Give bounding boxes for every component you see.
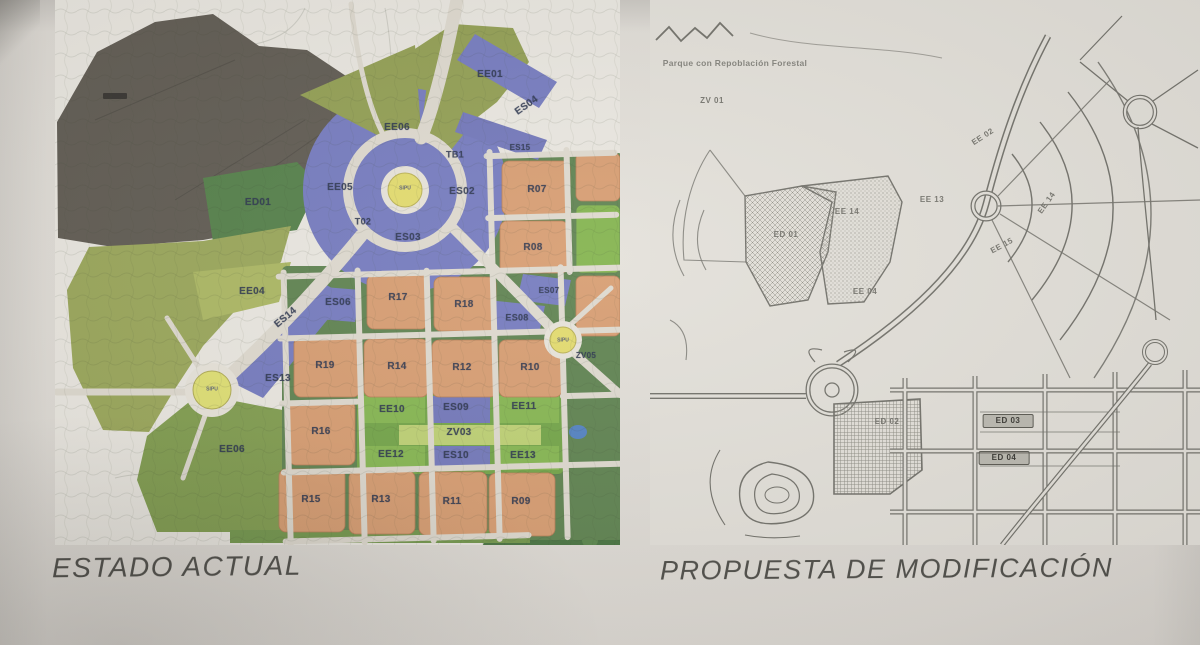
zone-label: R10 [520, 363, 539, 373]
zone-label: EE 14 [1037, 191, 1057, 215]
zone-label: EE 04 [853, 288, 877, 296]
zone-label: TB1 [446, 151, 464, 160]
zone-label: ZV 01 [700, 97, 724, 105]
roundabout-label: SIPU [557, 339, 569, 344]
zone-label: EE13 [510, 451, 536, 461]
zone-label: R12 [452, 363, 471, 373]
zone-label: R09 [511, 497, 530, 507]
zone-label: R18 [454, 300, 473, 310]
zone-label: EE 15 [989, 237, 1014, 255]
zone-label: ES14 [273, 306, 299, 330]
right-map-caption: PROPUESTA DE MODIFICACIÓN [660, 552, 1113, 586]
zone-label: ES07 [539, 287, 560, 295]
zone-label: ES06 [325, 298, 351, 308]
zone-label: ES10 [443, 451, 469, 461]
zone-label: ES04 [514, 95, 541, 118]
zone-label: EE01 [477, 70, 503, 80]
left-map-caption: ESTADO ACTUAL [52, 550, 302, 585]
zone-label: R16 [311, 427, 330, 437]
highlighted-zone-label: ED 03 [983, 414, 1034, 428]
zone-label: EE10 [379, 405, 405, 415]
zone-label: ES15 [510, 144, 531, 152]
zone-label: ES09 [443, 403, 469, 413]
zone-label: ED 01 [774, 231, 799, 239]
zone-label: EE05 [327, 183, 353, 193]
zone-label: ED01 [245, 198, 271, 208]
zone-label: R15 [301, 495, 320, 505]
zone-label: EE 02 [971, 127, 996, 147]
zone-label: ES02 [449, 187, 475, 197]
zone-label: EE06 [219, 445, 245, 455]
zone-label: EE06 [384, 123, 410, 133]
zone-label: EE11 [511, 402, 536, 412]
zone-label: R17 [388, 293, 407, 303]
zone-label: ES08 [505, 314, 528, 323]
zone-label: ZV03 [446, 428, 471, 438]
zone-label: ES13 [265, 374, 291, 384]
zone-label: ZV05 [576, 352, 596, 360]
roundabout-label: SIPU [399, 187, 411, 192]
right-map-labels: Parque con Repoblación ForestalZV 01EE 0… [650, 0, 1200, 545]
highlighted-zone-label: ED 04 [979, 451, 1030, 465]
zone-label: EE04 [239, 287, 265, 297]
zone-label: ED 02 [875, 418, 900, 426]
zone-label: EE12 [378, 450, 404, 460]
zone-label: R11 [443, 497, 462, 507]
zone-label: EE 14 [835, 208, 859, 216]
zone-label: ES03 [395, 233, 421, 243]
zone-label: R13 [371, 495, 390, 505]
left-map-labels: EE01ES04EE06ES15TB1EE05ED01ES02R07T02ES0… [55, 0, 620, 545]
zone-label: T02 [355, 218, 371, 227]
roundabout-label: SIPU [206, 388, 218, 393]
zone-label: R14 [387, 362, 406, 372]
zone-label: EE 13 [920, 196, 944, 204]
park-annotation: Parque con Repoblación Forestal [663, 59, 807, 68]
zone-label: R08 [523, 243, 542, 253]
zone-label: R19 [315, 361, 334, 371]
propuesta-modificacion-map: Parque con Repoblación ForestalZV 01EE 0… [650, 0, 1200, 545]
zone-label: R07 [527, 185, 546, 195]
estado-actual-map: EE01ES04EE06ES15TB1EE05ED01ES02R07T02ES0… [55, 0, 620, 545]
